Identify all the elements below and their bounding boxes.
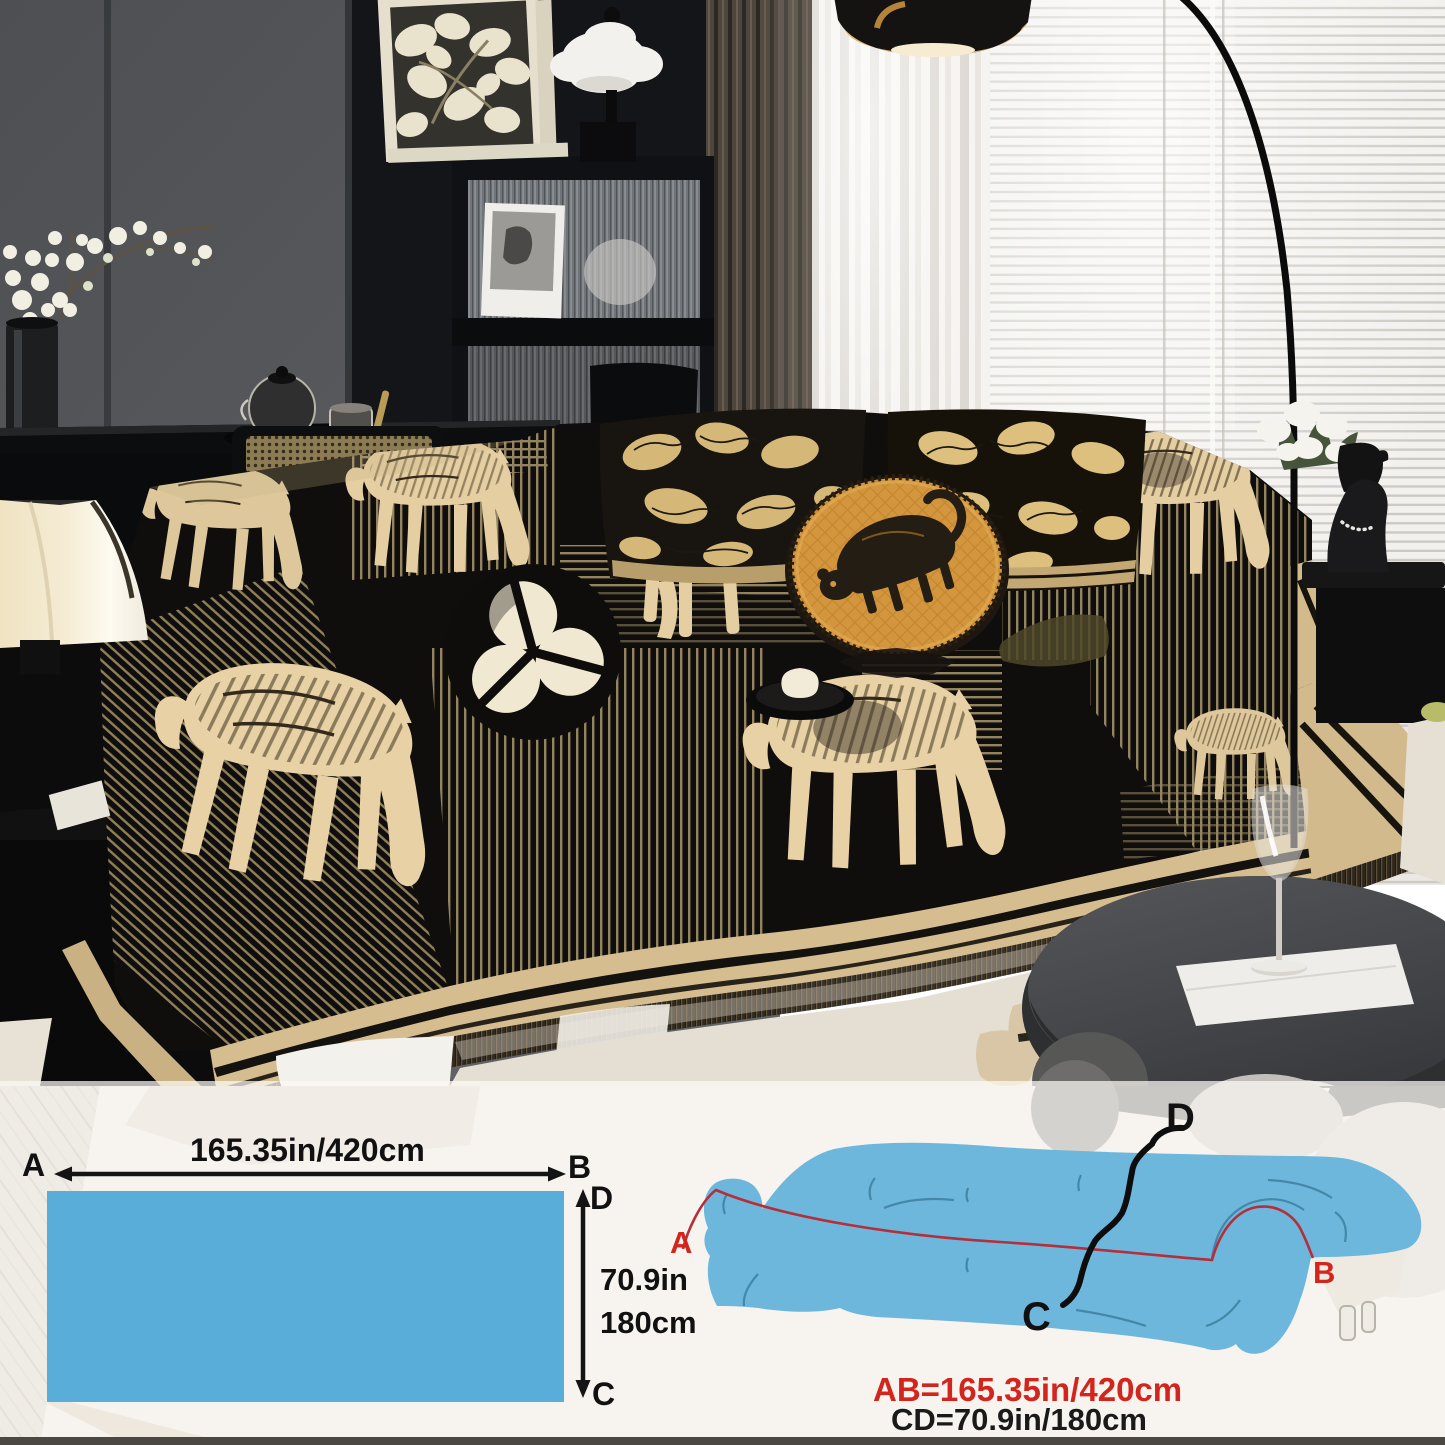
svg-text:165.35in/420cm: 165.35in/420cm xyxy=(190,1132,425,1168)
svg-text:A: A xyxy=(22,1147,45,1183)
svg-text:CD=70.9in/180cm: CD=70.9in/180cm xyxy=(891,1402,1147,1437)
svg-text:180cm: 180cm xyxy=(600,1305,697,1340)
svg-text:B: B xyxy=(1313,1255,1335,1290)
svg-text:D: D xyxy=(590,1180,613,1216)
svg-text:C: C xyxy=(592,1376,615,1412)
svg-text:C: C xyxy=(1022,1295,1051,1339)
svg-text:70.9in: 70.9in xyxy=(600,1262,688,1297)
svg-text:D: D xyxy=(1166,1096,1195,1140)
svg-text:A: A xyxy=(670,1225,692,1260)
svg-text:B: B xyxy=(568,1149,591,1185)
